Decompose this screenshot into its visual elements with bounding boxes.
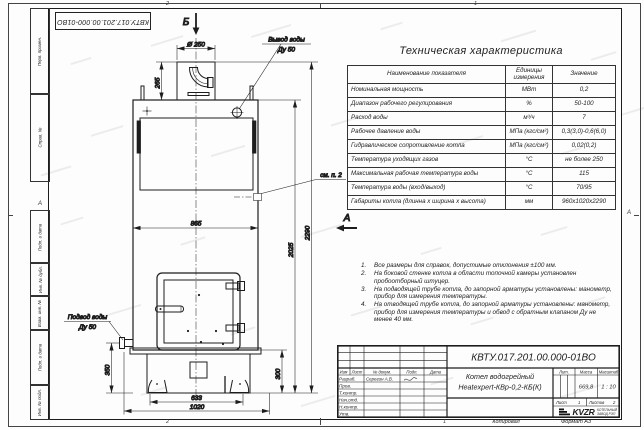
company-line-2: ЗАВОД РЭП [597, 412, 616, 416]
outlet-nozzle [231, 106, 244, 119]
zone-top-left: 2 [166, 1, 169, 7]
zone-bottom-left: 2 [166, 419, 169, 425]
base-assembly [147, 354, 250, 393]
view-a-arrow [336, 225, 357, 232]
margin-cell-perv-primen: Перв. примен. [30, 8, 50, 95]
margin-cell-sprav-no: Справ. № [30, 93, 50, 182]
spec-row: Температура уходящих газов°Сне более 250 [348, 154, 616, 168]
logo-bars-icon [559, 409, 564, 411]
spec-row: Рабочее давление водыМПа (кгс/см²)0,3(3,… [348, 126, 616, 140]
tb-sheets-label: Листов [588, 400, 605, 405]
section-b-label: Б [183, 17, 190, 28]
tb-lit-label: Лит. [558, 369, 569, 374]
tb-col-izm: Изм [340, 369, 348, 374]
logo-text: KVZR [573, 407, 596, 417]
tb-col-list: Лист [351, 369, 363, 374]
plinth-band [130, 348, 261, 354]
tb-role-razrab: Разраб. [339, 376, 356, 381]
zone-top-right: 1 [474, 1, 477, 7]
kvzr-logo: KVZR КОТЕЛЬНЫЙ ЗАВОД РЭП [559, 407, 618, 417]
spec-table-title: Техническая характеристика [347, 45, 615, 57]
dim-body-w-label: 865 [191, 221, 202, 228]
tb-sheet-label: Лист [555, 400, 567, 405]
upper-panel [140, 118, 253, 190]
dim-total-h-label: 2290 [305, 225, 312, 241]
notes-list: 1.Все размеры для справок, допустимые от… [358, 262, 614, 324]
footer-copied-label: Копировал [466, 419, 546, 427]
zone-side-right: А [627, 210, 631, 216]
spec-header-row: Наименование показателя Единицы измерени… [348, 66, 616, 84]
title-block: Изм Лист № докум. Подп. Дата Разраб. Про… [337, 345, 620, 418]
inlet-stub [120, 338, 134, 349]
zone-tick-right [634, 215, 639, 216]
spec-row: Гидравлическое сопротивление котлаМПа (к… [348, 140, 616, 154]
dim-chimney-h-label: 265 [155, 77, 162, 89]
note-item: 1.Все размеры для справок, допустимые от… [358, 262, 614, 269]
tb-mass-value: 669,8 [579, 385, 594, 391]
section-b-arrow [193, 13, 200, 35]
margin-cell-vzam-inv: Взам. инв. № [30, 295, 50, 331]
tb-product-1: Котел водогрейный [466, 372, 534, 381]
footer-format-label: Формат А3 [536, 419, 616, 427]
spec-row: Температура воды (вход/выход)°С70/95 [348, 182, 616, 196]
tb-scale-value: 1 : 10 [601, 385, 616, 391]
furnace-door [156, 273, 245, 350]
tb-col-doc: № докум. [373, 369, 391, 374]
spec-table: Наименование показателя Единицы измерени… [347, 65, 616, 210]
see-note-label: см. п. 2 [320, 172, 342, 179]
dim-inlet-h-label: 350 [105, 364, 112, 375]
zone-side-left: А [38, 201, 42, 207]
note-item: 2.На боковой стенке котла в области топо… [358, 270, 614, 285]
tb-sheets-value: 2 [612, 400, 616, 405]
zone-tick-bottom [320, 418, 321, 425]
tb-role-nachotd: Нач.отд. [339, 397, 358, 402]
outlet-label-1: Вывод воды [268, 36, 305, 44]
dim-depth-label: 1020 [190, 404, 205, 411]
boiler-drawing: Б Ø 250 265 [48, 8, 358, 418]
panel-clamp-right [253, 121, 256, 153]
dim-base-h-label: 300 [275, 368, 282, 379]
tb-role-nkontr: Н.контр. [339, 404, 358, 409]
spec-col-value: Значение [553, 66, 616, 84]
spec-row: Габариты котла (длинна x ширина x высота… [348, 196, 616, 210]
tb-sheet-value: 1 [578, 400, 580, 405]
margin-cell-inv-podl: Инв. № подл. [30, 384, 50, 420]
dim-base-h [258, 350, 287, 393]
dim-chimney-dia-label: Ø 250 [186, 42, 205, 49]
note-item: 3.На подводящей трубе котла, до запорной… [358, 286, 614, 301]
margin-cell-podp-data-1: Подп. и дата [30, 210, 50, 264]
spec-col-name: Наименование показателя [348, 66, 506, 84]
tb-developer: Серегин А.В. [366, 376, 393, 381]
margin-cell-podp-data-2: Подп. и дата [30, 329, 50, 386]
tb-doc-number: КВТУ.017.201.00.000-01ВО [471, 353, 596, 364]
outlet-elbow [188, 68, 213, 96]
tb-role-tkontr: Т.контр. [339, 390, 358, 395]
note-item: 4.На отводящей трубе котла, до запорной … [358, 301, 614, 323]
dim-body-h-label: 2025 [288, 242, 295, 258]
view-a-label: А [343, 213, 351, 224]
inlet-label-1: Подвод воды [68, 313, 108, 321]
spec-row: Расход водым³/ч7 [348, 112, 616, 126]
center-mark [143, 107, 152, 116]
signature-squiggle [404, 377, 417, 380]
spec-col-units: Единицы измерения [506, 66, 553, 84]
outlet-label-2: Ду 50 [277, 47, 295, 54]
zone-tick-left [8, 215, 13, 216]
inlet-label-2: Ду 50 [78, 324, 96, 331]
zone-bottom-right: 1 [443, 419, 446, 425]
tb-col-sign: Подп. [406, 369, 417, 374]
drawing-sheet: 2 1 2 1 А А Перв. примен. Справ. № Подп.… [0, 0, 644, 430]
tb-role-utv: Утв. [339, 412, 349, 417]
dim-base-w-label: 633 [191, 395, 202, 402]
lug-left [141, 86, 144, 100]
spec-row: Диапазон рабочего регулирования%50-100 [348, 98, 616, 112]
spec-row: Максимальная рабочая температура воды°С1… [348, 168, 616, 182]
tb-mass-label: Масса [580, 369, 593, 374]
tb-role-prov: Пров. [339, 383, 351, 388]
tb-col-date: Дата [429, 369, 442, 374]
tb-scale-label: Масштаб [599, 369, 619, 374]
margin-cell-inv-dubl: Инв. № дубл. [30, 262, 50, 297]
panel-clamp-left [137, 121, 140, 153]
spec-row: Номинальная мощностьМВт0,2 [348, 84, 616, 98]
tb-product-2: Heatexpert-КВр-0,2-КБ(К) [458, 383, 541, 392]
